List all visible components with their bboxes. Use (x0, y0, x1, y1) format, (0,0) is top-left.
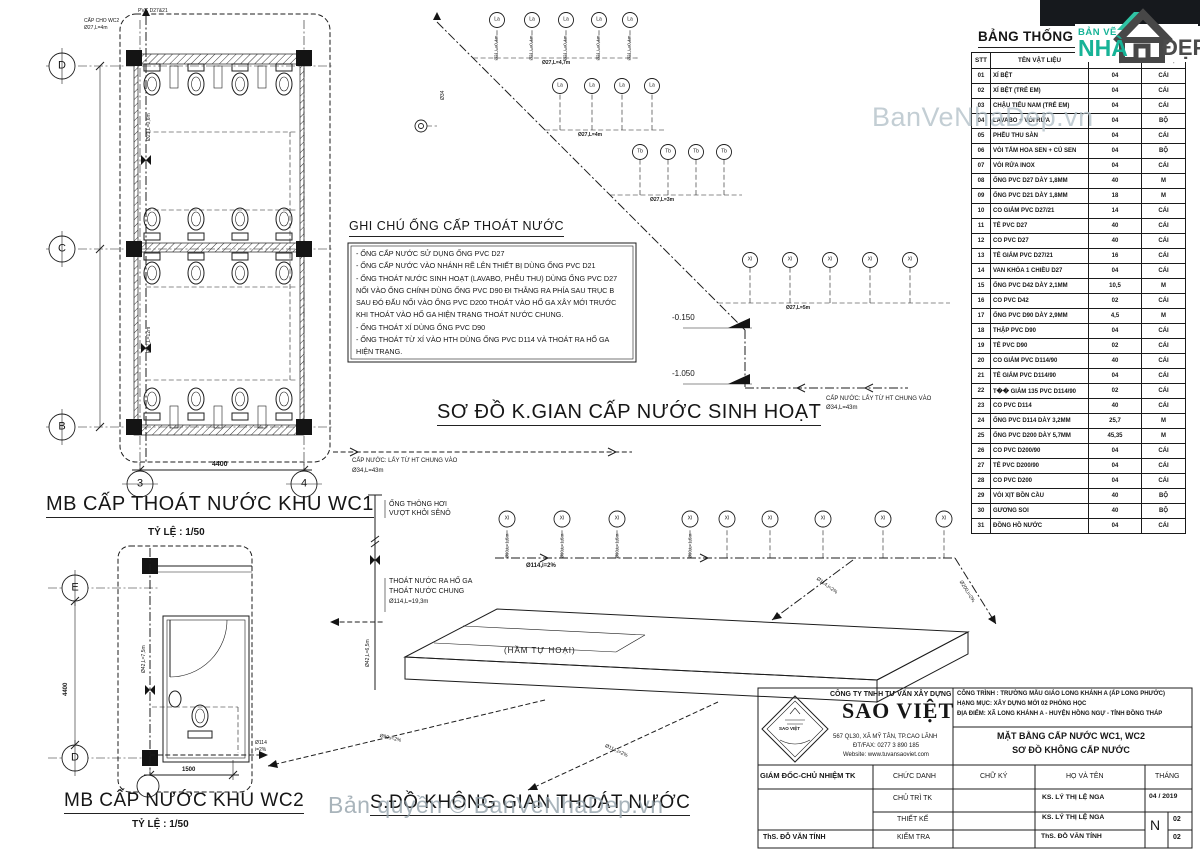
wc1-pipe-v1: Ø27,L=12m (147, 327, 152, 353)
table-row: 17ỐNG PVC D90 DÀY 2,9MM4,5M (972, 309, 1186, 324)
grid-label-c: C (58, 244, 66, 255)
table-row: 26CO PVC D200/9004CÁI (972, 444, 1186, 459)
cell-qty: 04 (1089, 369, 1142, 384)
cell-name: GƯƠNG SOI (991, 504, 1089, 519)
cell-unit: M (1142, 429, 1186, 444)
cell-unit: CÁI (1142, 369, 1186, 384)
tb-col-month: THÁNG (1155, 773, 1180, 780)
cell-unit: M (1142, 279, 1186, 294)
grid-label-d: D (58, 61, 66, 72)
brand-line3: ĐẸP (1162, 37, 1200, 59)
cell-stt: 12 (972, 234, 991, 249)
cell-name: TÊ GIẢM PVC D27/21 (991, 249, 1089, 264)
cell-unit: M (1142, 309, 1186, 324)
grid-label-3: 3 (137, 479, 143, 490)
cell-qty: 04 (1089, 69, 1142, 84)
company-addr3: Website: www.tuvansaoviet.com (843, 752, 929, 758)
septic-label: (HẦM TỰ HOẠI) (504, 647, 576, 655)
cell-qty: 4,5 (1089, 309, 1142, 324)
table-row: 22T�� GIẢM 135 PVC D114/9002CÁI (972, 384, 1186, 399)
cell-name: CO GIẢM PVC D27/21 (991, 204, 1089, 219)
cell-qty: 10,5 (1089, 279, 1142, 294)
tb-role-1: CHỦ TRÌ TK (893, 795, 932, 802)
grid-label-d2: D (71, 753, 79, 764)
vent-label-1: ỐNG THÔNG HƠI (389, 501, 447, 508)
tb-role-3: KIỂM TRA (897, 834, 930, 841)
cell-stt: 02 (972, 84, 991, 99)
cell-qty: 16 (1089, 249, 1142, 264)
cell-name: ỐNG PVC D27 DÀY 1,8MM (991, 174, 1089, 189)
cell-qty: 04 (1089, 114, 1142, 129)
cell-qty: 40 (1089, 504, 1142, 519)
wc2-plan (48, 546, 268, 797)
cell-unit: CÁI (1142, 99, 1186, 114)
table-row: 08ỐNG PVC D27 DÀY 1,8MM40M (972, 174, 1186, 189)
cell-stt: 30 (972, 504, 991, 519)
table-row: 01XÍ BỆT04CÁI (972, 69, 1186, 84)
tb-col-sign: CHỮ KÝ (980, 773, 1007, 780)
cell-name: XÍ BỆT (TRẺ EM) (991, 84, 1089, 99)
source-label-right: CẤP NƯỚC: LẤY TỪ HT CHUNG VÀO (826, 396, 931, 402)
cell-qty: 04 (1089, 264, 1142, 279)
tb-left-name: ThS. ĐỖ VĂN TÍNH (763, 834, 826, 841)
cell-stt: 20 (972, 354, 991, 369)
table-row: 30GƯƠNG SOI40BỘ (972, 504, 1186, 519)
cell-name: CO PVC D200 (991, 474, 1089, 489)
cell-name: TÊ PVC D90 (991, 339, 1089, 354)
note-line: - ỐNG CẤP NƯỚC SỬ DỤNG ỐNG PVC D27 (356, 248, 617, 260)
cell-qty: 04 (1089, 144, 1142, 159)
cell-stt: 17 (972, 309, 991, 324)
cell-name: ĐỒNG HỒ NƯỚC (991, 519, 1089, 534)
cell-name: CO PVC D200/90 (991, 444, 1089, 459)
drawing-title-line2: SƠ ĐỒ KHÔNG CẤP NƯỚC (955, 746, 1187, 755)
dim-wc1-width: 4400 (212, 461, 228, 468)
cell-unit: BỘ (1142, 114, 1186, 129)
cell-stt: 16 (972, 294, 991, 309)
wc2-exit-label1: Ø114 (255, 741, 267, 746)
tb-col-role: CHỨC DANH (893, 773, 936, 780)
cell-stt: 01 (972, 69, 991, 84)
col-name: TÊN VẬT LIỆU (991, 53, 1089, 69)
cell-name: XÍ BỆT (991, 69, 1089, 84)
cell-qty: 04 (1089, 324, 1142, 339)
note-line: - ỐNG CẤP NƯỚC VÀO NHÁNH RẼ LÊN THIẾT BỊ… (356, 260, 617, 272)
table-row: 31ĐỒNG HỒ NƯỚC04CÁI (972, 519, 1186, 534)
cell-unit: CÁI (1142, 234, 1186, 249)
tb-col-name: HỌ VÀ TÊN (1066, 773, 1104, 780)
cell-stt: 21 (972, 369, 991, 384)
cell-unit: CÁI (1142, 294, 1186, 309)
cell-stt: 07 (972, 159, 991, 174)
cell-unit: CÁI (1142, 444, 1186, 459)
cell-stt: 09 (972, 189, 991, 204)
cell-stt: 11 (972, 219, 991, 234)
cell-stt: 13 (972, 249, 991, 264)
cell-name: VÒI TẮM HOA SEN + CỦ SEN (991, 144, 1089, 159)
cell-unit: CÁI (1142, 339, 1186, 354)
note-line: - ỐNG THOÁT NƯỚC SINH HOẠT (LAVABO, PHỄU… (356, 273, 617, 285)
source-label-left: CẤP NƯỚC: LẤY TỪ HT CHUNG VÀO (352, 458, 457, 464)
cell-name: ỐNG PVC D21 DÀY 1,8MM (991, 189, 1089, 204)
level-mark-1: -0.150 (672, 314, 695, 322)
cell-stt: 31 (972, 519, 991, 534)
cell-name: THẬP PVC D90 (991, 324, 1089, 339)
cell-unit: CÁI (1142, 204, 1186, 219)
table-row: 12CO PVC D2740CÁI (972, 234, 1186, 249)
note-line: HIỆN TRẠNG. (356, 346, 617, 358)
cell-stt: 08 (972, 174, 991, 189)
cell-qty: 25,7 (1089, 414, 1142, 429)
drain-out-label-1: THOÁT NƯỚC RA HỐ GA (389, 578, 472, 585)
table-row: 20CO GIẢM PVC D114/9040CÁI (972, 354, 1186, 369)
grid-label-4: 4 (301, 479, 307, 490)
cell-stt: 15 (972, 279, 991, 294)
cell-stt: 26 (972, 444, 991, 459)
project-line2: HẠNG MỤC: XÂY DỰNG MỚI 02 PHÒNG HỌC (957, 701, 1086, 707)
wc2-plan-scale: TỶ LỆ : 1/50 (132, 820, 189, 830)
tb-name-2: KS. LÝ THỊ LỆ NGA (1042, 815, 1104, 822)
cell-name: CO GIẢM PVC D114/90 (991, 354, 1089, 369)
company-badge: SAO VIỆT (779, 727, 800, 732)
table-row: 06VÒI TẮM HOA SEN + CỦ SEN04BỘ (972, 144, 1186, 159)
level-mark-2: -1.050 (672, 370, 695, 378)
cell-name: ỐNG PVC D42 DÀY 2,1MM (991, 279, 1089, 294)
cell-unit: BỘ (1142, 504, 1186, 519)
cell-unit: M (1142, 189, 1186, 204)
tb-sheet-n1: 02 (1173, 816, 1181, 823)
table-row: 02XÍ BỆT (TRẺ EM)04CÁI (972, 84, 1186, 99)
project-line3: ĐỊA ĐIỂM: XÃ LONG KHÁNH A - HUYỆN HỒNG N… (957, 711, 1162, 717)
wc2-plan-title: MB CẤP NƯỚC KHU WC2 (64, 791, 304, 814)
company-addr2: ĐT/FAX: 0277 3 890 185 (853, 743, 919, 749)
table-row: 09ỐNG PVC D21 DÀY 1,8MM18M (972, 189, 1186, 204)
cell-qty: 04 (1089, 444, 1142, 459)
cell-unit: CÁI (1142, 384, 1186, 399)
cell-name: ỐNG PVC D114 DÀY 3,2MM (991, 414, 1089, 429)
cell-qty: 04 (1089, 519, 1142, 534)
cell-stt: 19 (972, 339, 991, 354)
tb-month-value: 04 / 2019 (1149, 794, 1177, 801)
cell-stt: 22 (972, 384, 991, 399)
table-row: 14VAN KHÓA 1 CHIỀU D2704CÁI (972, 264, 1186, 279)
table-row: 15ỐNG PVC D42 DÀY 2,1MM10,5M (972, 279, 1186, 294)
cell-stt: 25 (972, 429, 991, 444)
company-line1: CÔNG TY TNHH TƯ VẤN XÂY DỰNG (830, 691, 951, 698)
cell-unit: CÁI (1142, 84, 1186, 99)
wc2-exit-label2: i=2% (255, 748, 266, 753)
tb-role-2: THIẾT KẾ (897, 816, 928, 823)
wc2-pipe-v: Ø42,L=7,5m (142, 645, 147, 673)
cell-stt: 14 (972, 264, 991, 279)
cell-qty: 02 (1089, 339, 1142, 354)
cell-qty: 40 (1089, 219, 1142, 234)
table-row: 19TÊ PVC D9002CÁI (972, 339, 1186, 354)
cell-name: TÊ GIẢM PVC D114/90 (991, 369, 1089, 384)
cell-name: ỐNG PVC D90 DÀY 2,9MM (991, 309, 1089, 324)
supply-main-size: Ø34 (441, 91, 446, 100)
source-size-left: Ø34,L=43m (352, 468, 384, 474)
table-row: 13TÊ GIẢM PVC D27/2116CÁI (972, 249, 1186, 264)
cell-qty: 40 (1089, 399, 1142, 414)
cell-qty: 04 (1089, 84, 1142, 99)
cell-qty: 45,35 (1089, 429, 1142, 444)
cell-qty: 04 (1089, 159, 1142, 174)
watermark-top: BanVeNhaDep.vn (872, 104, 1094, 131)
company-addr1: 567 QL30, XÃ MỸ TÂN, TP.CAO LÃNH (833, 734, 937, 740)
tb-sheet-n2: 02 (1173, 834, 1181, 841)
cell-stt: 24 (972, 414, 991, 429)
cell-unit: CÁI (1142, 399, 1186, 414)
note-line: NỐI VÀO ỐNG CHÍNH DÙNG ỐNG PVC D90 ĐI TH… (356, 285, 617, 297)
cell-unit: CÁI (1142, 324, 1186, 339)
cell-qty: 40 (1089, 174, 1142, 189)
table-row: 28CO PVC D20004CÁI (972, 474, 1186, 489)
cell-unit: M (1142, 174, 1186, 189)
company-name: SAO VIỆT (842, 700, 954, 722)
note-line: - ỐNG THOÁT XÍ DÙNG ỐNG PVC D90 (356, 322, 617, 334)
cell-unit: CÁI (1142, 219, 1186, 234)
table-row: 25ỐNG PVC D200 DÀY 5,7MM45,35M (972, 429, 1186, 444)
cell-unit: CÁI (1142, 129, 1186, 144)
col-stt: STT (972, 53, 991, 69)
brand-line2: NHÀ (1078, 37, 1128, 60)
tb-col-director: GIÁM ĐỐC-CHỦ NHIỆM TK (760, 772, 855, 780)
table-row: 24ỐNG PVC D114 DÀY 3,2MM25,7M (972, 414, 1186, 429)
cell-name: ỐNG PVC D200 DÀY 5,7MM (991, 429, 1089, 444)
drain-out-label-3: Ø114,L=19,3m (389, 599, 428, 605)
cell-unit: CÁI (1142, 474, 1186, 489)
cell-unit: CÁI (1142, 159, 1186, 174)
wc1-plan-title: MB CẤP THOÁT NƯỚC KHU WC1 (46, 494, 374, 518)
project-line1: CÔNG TRÌNH : TRƯỜNG MẪU GIÁO LONG KHÁNH … (957, 691, 1165, 697)
cell-qty: 40 (1089, 489, 1142, 504)
wc1-plan-scale: TỶ LỆ : 1/50 (148, 528, 205, 538)
drain-main-size: Ø114,i=2% (526, 563, 556, 569)
wc1-top-label1: CẤP CHO WC2 (84, 19, 119, 24)
cell-unit: CÁI (1142, 354, 1186, 369)
cell-stt: 06 (972, 144, 991, 159)
tb-name-3: ThS. ĐỖ VĂN TÍNH (1041, 834, 1102, 841)
table-row: 07VÒI RỬA INOX04CÁI (972, 159, 1186, 174)
table-row: 18THẬP PVC D9004CÁI (972, 324, 1186, 339)
cell-unit: BỘ (1142, 489, 1186, 504)
cell-name: VÒI XỊT BỒN CẦU (991, 489, 1089, 504)
cell-qty: 04 (1089, 129, 1142, 144)
note-line: - ỐNG THOÁT TỪ XÍ VÀO HTH DÙNG ỐNG PVC D… (356, 334, 617, 346)
watermark-bottom: Bản quyền © BanVeNhaDep.vn (328, 794, 664, 817)
cell-qty: 02 (1089, 384, 1142, 399)
cell-stt: 18 (972, 324, 991, 339)
note-line: KHI THOÁT VÀO HỐ GA HIỆN TRẠNG THOÁT NƯỚ… (356, 309, 617, 321)
cell-stt: 29 (972, 489, 991, 504)
table-row: 11TÊ PVC D2740CÁI (972, 219, 1186, 234)
cell-name: TÊ PVC D200/90 (991, 459, 1089, 474)
wc1-pipe-v2: Ø21,L=0,6m (147, 113, 152, 141)
cell-unit: CÁI (1142, 249, 1186, 264)
table-row: 21TÊ GIẢM PVC D114/9004CÁI (972, 369, 1186, 384)
cell-unit: CÁI (1142, 264, 1186, 279)
cell-qty: 02 (1089, 294, 1142, 309)
cell-name: VAN KHÓA 1 CHIỀU D27 (991, 264, 1089, 279)
cell-stt: 23 (972, 399, 991, 414)
grid-label-b: B (58, 422, 65, 433)
vent-label-2: VƯỢT KHỎI SÊNÔ (389, 510, 451, 517)
cell-unit: CÁI (1142, 459, 1186, 474)
note-line: SAU ĐÓ ĐẤU NỐI VÀO ỐNG PVC D200 THOÁT VÀ… (356, 297, 617, 309)
tb-name-1: KS. LÝ THỊ LỆ NGA (1042, 795, 1104, 802)
wc1-mini-top: PVC D27&21 (138, 9, 168, 14)
drawing-title-line1: MẶT BẰNG CẤP NƯỚC WC1, WC2 (955, 732, 1187, 741)
cell-stt: 10 (972, 204, 991, 219)
dim-wc2-height: 4400 (63, 683, 69, 696)
cell-qty: 04 (1089, 474, 1142, 489)
cell-stt: 28 (972, 474, 991, 489)
table-row: 23CO PVC D11440CÁI (972, 399, 1186, 414)
cell-name: CO PVC D114 (991, 399, 1089, 414)
cell-unit: BỘ (1142, 144, 1186, 159)
cell-stt: 27 (972, 459, 991, 474)
cell-qty: 18 (1089, 189, 1142, 204)
grid-label-e: E (71, 583, 78, 594)
cell-name: CO PVC D27 (991, 234, 1089, 249)
cell-unit: CÁI (1142, 69, 1186, 84)
table-row: 16CO PVC D4202CÁI (972, 294, 1186, 309)
source-size-right: Ø34,L=43m (826, 405, 858, 411)
supply-diagram-title: SƠ ĐỒ K.GIAN CẤP NƯỚC SINH HOẠT (437, 402, 821, 426)
note-title: GHI CHÚ ỐNG CẤP THOÁT NƯỚC (349, 220, 564, 237)
cell-name: T�� GIẢM 135 PVC D114/90 (991, 384, 1089, 399)
vent-pipe-size: Ø42,L=6,5m (366, 639, 371, 667)
cell-qty: 04 (1089, 99, 1142, 114)
cell-unit: CÁI (1142, 519, 1186, 534)
table-row: 29VÒI XỊT BỒN CẦU40BỘ (972, 489, 1186, 504)
cell-name: CO PVC D42 (991, 294, 1089, 309)
note-lines: - ỐNG CẤP NƯỚC SỬ DỤNG ỐNG PVC D27- ỐNG … (356, 248, 617, 359)
wc1-top-label2: Ø27,L=4m (84, 26, 108, 31)
cell-name: TÊ PVC D27 (991, 219, 1089, 234)
cell-qty: 04 (1089, 459, 1142, 474)
cell-qty: 40 (1089, 234, 1142, 249)
dim-wc2-width: 1500 (182, 767, 195, 773)
table-row: 27TÊ PVC D200/9004CÁI (972, 459, 1186, 474)
cell-name: VÒI RỬA INOX (991, 159, 1089, 174)
table-row: 10CO GIẢM PVC D27/2114CÁI (972, 204, 1186, 219)
cell-unit: M (1142, 414, 1186, 429)
cell-qty: 14 (1089, 204, 1142, 219)
drain-out-label-2: THOÁT NƯỚC CHUNG (389, 588, 464, 595)
tb-sheet-letter: N (1150, 818, 1160, 832)
cell-qty: 40 (1089, 354, 1142, 369)
